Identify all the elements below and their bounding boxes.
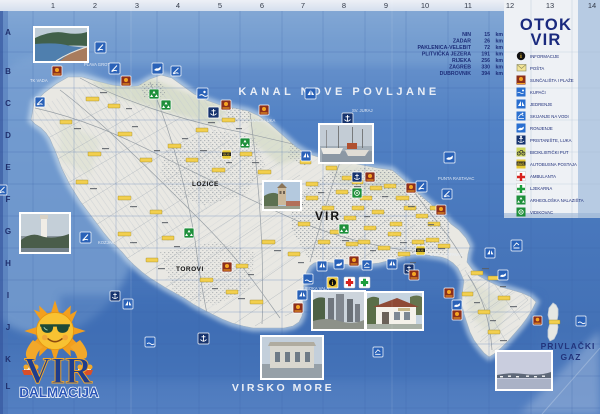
svg-text:256: 256 xyxy=(481,58,490,64)
svg-text:H: H xyxy=(5,259,11,268)
svg-text:7: 7 xyxy=(301,1,305,10)
svg-text:DALMACIJA: DALMACIJA xyxy=(19,385,99,400)
svg-text:km: km xyxy=(496,52,504,58)
svg-text:KUPAČI: KUPAČI xyxy=(530,90,546,95)
svg-text:191: 191 xyxy=(481,52,490,58)
svg-text:RONJENJE: RONJENJE xyxy=(530,126,553,131)
svg-text:8: 8 xyxy=(342,1,346,10)
svg-text:PRISTANIŠTE, LUKA: PRISTANIŠTE, LUKA xyxy=(530,138,572,143)
svg-text:A: A xyxy=(5,28,11,37)
svg-text:AUTOBUSNA POSTAJA: AUTOBUSNA POSTAJA xyxy=(530,162,577,167)
svg-text:394: 394 xyxy=(481,71,490,77)
svg-text:C: C xyxy=(5,99,11,108)
svg-text:2: 2 xyxy=(93,1,97,10)
svg-text:11: 11 xyxy=(464,1,472,10)
svg-text:D: D xyxy=(5,131,11,140)
svg-text:ARHEOLOŠKA NALAZIŠTA: ARHEOLOŠKA NALAZIŠTA xyxy=(530,198,584,203)
svg-text:72: 72 xyxy=(484,45,490,51)
svg-text:TK VADA: TK VADA xyxy=(30,78,48,83)
svg-text:PUNTA RASTAVAC: PUNTA RASTAVAC xyxy=(438,176,474,181)
svg-text:km: km xyxy=(496,58,504,64)
svg-text:km: km xyxy=(496,71,504,77)
svg-text:BUS: BUS xyxy=(517,162,525,166)
svg-text:3: 3 xyxy=(135,1,139,10)
svg-text:I: I xyxy=(7,291,9,300)
svg-text:JEDRENJE: JEDRENJE xyxy=(530,102,552,107)
svg-text:BICIKLISTIČKI PUT: BICIKLISTIČKI PUT xyxy=(530,150,569,155)
svg-text:12: 12 xyxy=(506,1,514,10)
svg-text:SUNČALIŠTA I PLAŽE: SUNČALIŠTA I PLAŽE xyxy=(530,78,574,83)
svg-text:PRIVLAČKI: PRIVLAČKI xyxy=(541,340,596,351)
svg-text:13: 13 xyxy=(546,1,554,10)
svg-text:K: K xyxy=(5,355,11,364)
svg-text:VIR: VIR xyxy=(315,209,341,223)
svg-text:26: 26 xyxy=(484,39,490,45)
svg-text:SV. JURAJ: SV. JURAJ xyxy=(352,108,373,113)
svg-text:UVALA SAPAVAC: UVALA SAPAVAC xyxy=(430,252,463,257)
svg-text:km: km xyxy=(496,39,504,45)
svg-text:NIN: NIN xyxy=(462,32,471,38)
svg-text:KANAL NOVE POVLJANE: KANAL NOVE POVLJANE xyxy=(238,86,439,98)
svg-text:1: 1 xyxy=(51,1,55,10)
svg-text:ZADAR: ZADAR xyxy=(453,39,471,45)
svg-text:RIJEKA: RIJEKA xyxy=(452,58,471,64)
svg-text:G: G xyxy=(5,227,11,236)
svg-text:INFORMACIJE: INFORMACIJE xyxy=(530,54,559,59)
svg-text:VIDIKOVAC: VIDIKOVAC xyxy=(530,210,553,215)
svg-text:5: 5 xyxy=(218,1,222,10)
svg-text:BUS: BUS xyxy=(223,152,229,156)
svg-text:L: L xyxy=(6,382,11,391)
svg-text:10: 10 xyxy=(421,1,429,10)
svg-text:LJEKARNA: LJEKARNA xyxy=(530,186,552,191)
svg-text:LOZICE: LOZICE xyxy=(192,181,219,188)
svg-text:ZAGREB: ZAGREB xyxy=(449,65,471,71)
svg-text:330: 330 xyxy=(481,65,490,71)
svg-text:AMBULANTA: AMBULANTA xyxy=(530,174,556,179)
svg-text:9: 9 xyxy=(384,1,388,10)
svg-text:POŠTA: POŠTA xyxy=(530,66,544,71)
svg-text:4: 4 xyxy=(176,1,180,10)
svg-text:F: F xyxy=(6,195,11,204)
svg-text:E: E xyxy=(5,163,11,172)
svg-text:DUBROVNIK: DUBROVNIK xyxy=(440,71,472,77)
svg-text:UVALA LUKA: UVALA LUKA xyxy=(250,118,275,123)
svg-text:VIRSKO MORE: VIRSKO MORE xyxy=(232,382,334,394)
svg-text:TOROVI: TOROVI xyxy=(176,266,204,273)
svg-text:J: J xyxy=(6,323,10,332)
svg-text:km: km xyxy=(496,32,504,38)
svg-text:6: 6 xyxy=(260,1,264,10)
svg-text:km: km xyxy=(496,65,504,71)
svg-text:SKIJANJE NA VODI: SKIJANJE NA VODI xyxy=(530,114,569,119)
svg-text:14: 14 xyxy=(588,1,596,10)
svg-text:KOZJAK: KOZJAK xyxy=(98,240,114,245)
svg-text:15: 15 xyxy=(484,32,490,38)
svg-text:PAKLENICA-VELEBIT: PAKLENICA-VELEBIT xyxy=(417,45,471,51)
svg-text:BUS: BUS xyxy=(417,248,423,252)
svg-text:PLITVIČKA JEZERA: PLITVIČKA JEZERA xyxy=(422,51,471,58)
svg-text:VIR: VIR xyxy=(530,31,561,49)
svg-text:GAZ: GAZ xyxy=(561,352,582,362)
svg-text:B: B xyxy=(5,67,11,76)
svg-text:km: km xyxy=(496,45,504,51)
